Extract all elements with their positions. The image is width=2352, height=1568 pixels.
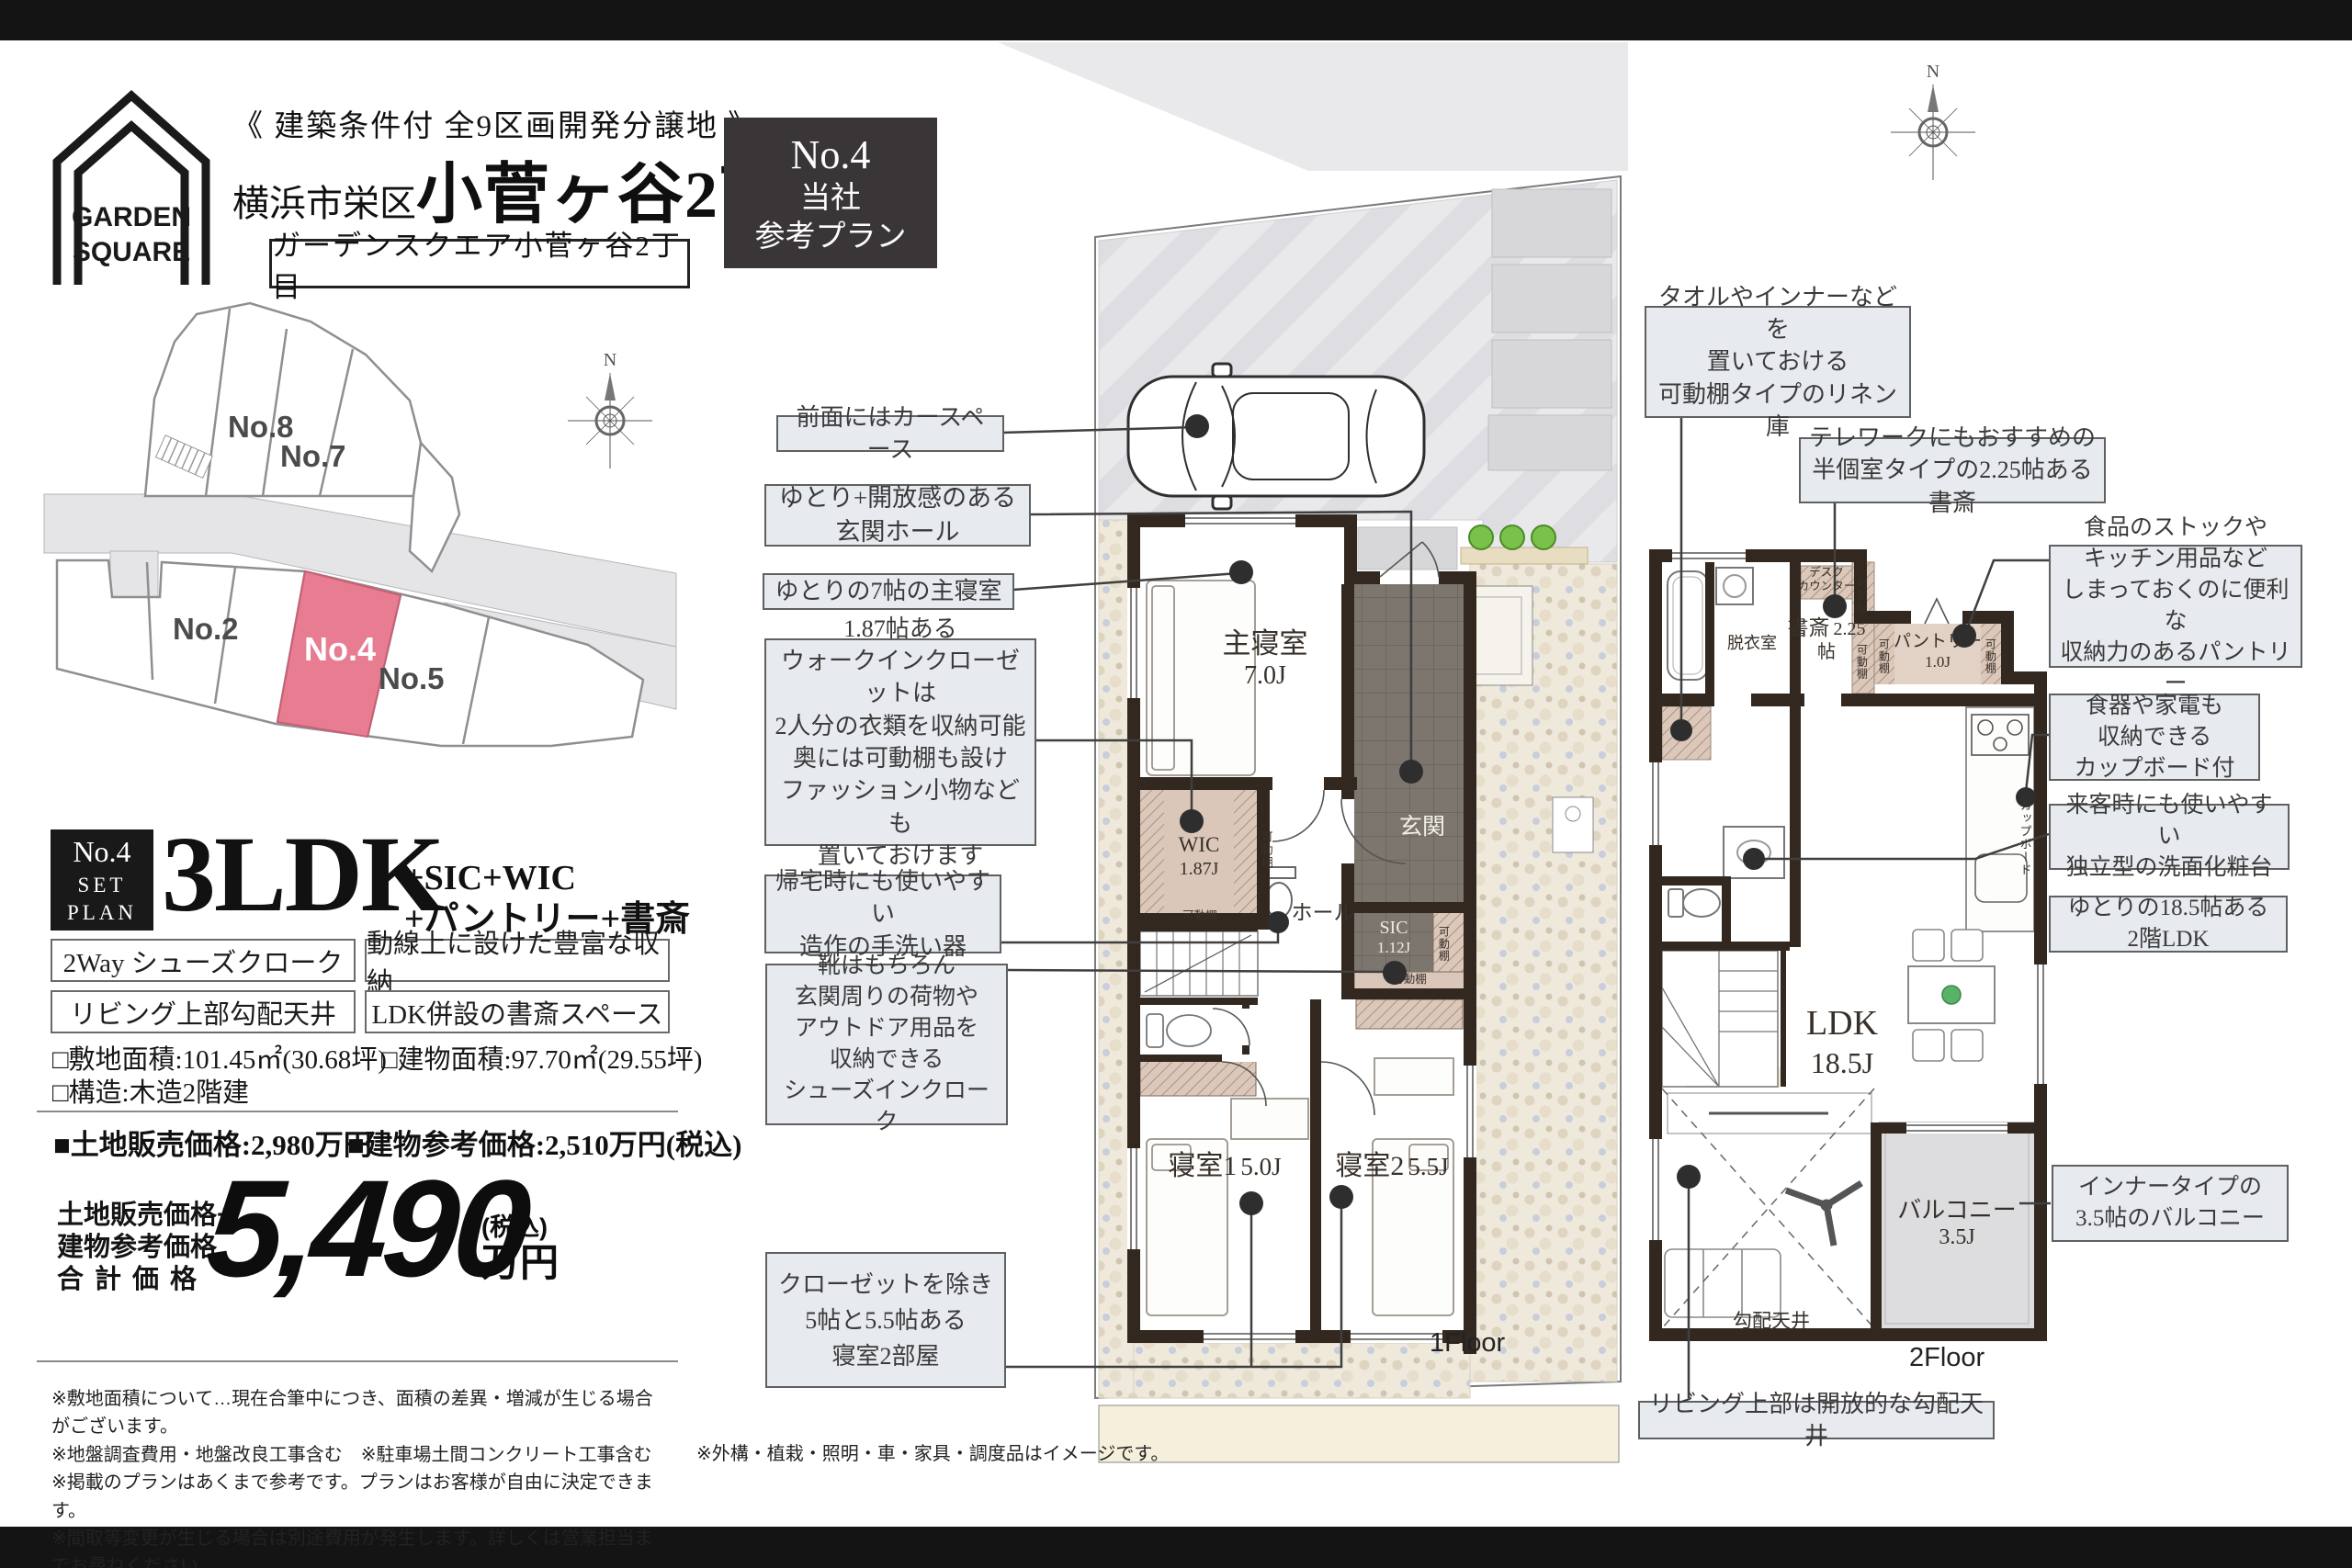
ldk-type: 3LDK [162,820,444,929]
divider-2 [37,1360,678,1362]
compass-icon [568,373,652,468]
room-master-bedroom: 主寝室 7.0J [1205,626,1325,692]
toilet-1f [1147,1014,1211,1047]
building-area: □建物面積:97.70㎡(29.55坪) [381,1038,702,1077]
callout-bedrooms: クローゼットを除き5帖と5.5帖ある寝室2部屋 [765,1252,1006,1388]
callout-linen-closet: タオルやインナーなどを置いておける可動棚タイプのリネン庫 [1645,306,1911,418]
room-name: 書斎 [1788,616,1830,639]
room-dressing: 脱衣室 [1720,634,1784,654]
total-price-unit: (税込) 万円 [481,1214,559,1284]
room-sic: SIC 1.12J [1362,917,1426,957]
car-illustration [1128,364,1424,509]
floor1-caption: 1Floor [1430,1328,1505,1359]
room-name: バルコニー [1897,1197,2016,1224]
lot-no2-label: No.2 [173,612,237,647]
badge-org: 当社 [800,180,861,218]
image-note: ※外構・植栽・照明・車・家具・調度品はイメージです。 [696,1440,1169,1468]
floor2-caption: 2Floor [1909,1343,1984,1373]
room-size: 1.12J [1377,939,1410,956]
room-name: SIC [1379,918,1408,938]
road-context-shape [998,42,1628,171]
room-balcony: バルコニー 3.5J [1883,1196,2030,1251]
plan-extras-1: +SIC+WIC [404,858,690,899]
room-size: 1.0J [1925,653,1951,671]
label-shelf: 可動棚 [1376,973,1442,987]
room-name: パントリー [1894,632,1982,651]
callout-shoes-closet: 靴はもちろん玄関周りの荷物やアウトドア用品を収納できるシューズインクローク [765,964,1008,1125]
note-line: ※掲載のプランはあくまで参考です。プランはお客様が自由に決定できます。 [51,1469,658,1525]
tax-included: (税込) [481,1214,559,1242]
room-name: WIC [1179,833,1220,856]
callout-sloped-ceiling: リビング上部は開放的な勾配天井 [1638,1401,1995,1439]
set-plan-set: SET [78,872,127,899]
flyer-page: N N [0,0,2352,1568]
floor-plan-1f [1095,176,1621,1462]
badge-plan: 参考プラン [755,219,907,256]
feature-study-space: LDK併設の書斎スペース [365,990,670,1033]
compass-n: N [604,350,616,370]
callout-cupboard: 食器や家電も収納できるカップボード付 [2049,694,2260,781]
logo-line1: GARDEN [72,202,191,232]
label-desk-counter: デスクカウンター [1790,566,1863,593]
sale-condition: 《 建築条件付 全9区画開発分譲地 》 [232,101,760,145]
badge-no: No.4 [791,130,871,180]
callout-entrance-hall: ゆとり+開放感のある玄関ホール [764,484,1031,547]
lot-no4-label: No.4 [303,630,377,669]
room-hall: ホール [1286,900,1360,926]
note-line: ※地盤調査費用・地盤改良工事含む ※駐車場土間コンクリート工事含む [51,1441,658,1469]
total-label-1: 土地販売価格+ [57,1200,232,1232]
stairs-2f [1662,951,1778,1087]
room-name: 主寝室 [1223,627,1308,660]
dining-set [1908,930,1995,1061]
bushes [1469,525,1555,549]
room-size: 3.5J [1939,1225,1974,1249]
front-road [1099,1405,1619,1462]
room-size: 1.87J [1180,859,1219,879]
room-wic: WIC 1.87J [1159,832,1238,880]
feature-shoes-cloak: 2Way シューズクローク [51,939,356,982]
label-shelf: 可動棚 [1437,911,1450,976]
room-name: 寝室2 [1335,1151,1404,1181]
label-sloped-ceiling: 勾配天井 [1724,1310,1819,1333]
bed2-closet [1356,999,1463,1029]
feature-storage: 動線上に設けた豊富な収納 [365,939,670,982]
set-plan-no: No.4 [73,833,130,872]
room-name: 寝室1 [1168,1151,1237,1181]
structure: □構造:木造2階建 [52,1071,249,1110]
bed1-closet [1140,1061,1256,1096]
room-ldk: LDK 18.5J [1792,1003,1893,1080]
callout-vanity: 来客時にも使いやすい独立型の洗面化粧台 [2049,804,2290,870]
project-name-box: ガーデンスクエア小菅ヶ谷2丁目 [269,239,690,288]
room-genkan: 玄関 [1378,814,1466,841]
callout-wic: 1.87帖あるウォークインクローゼットは2人分の衣類を収納可能奥には可動棚も設け… [764,638,1036,846]
set-plan-badge: No.4 SET PLAN [51,829,153,931]
callout-master-bedroom: ゆとりの7帖の主寝室 [763,573,1014,610]
label-shelf: 可動棚 [1259,814,1273,886]
room-study: 書斎 2.25帖 [1786,615,1867,663]
label-shelf: 可動棚 [1984,628,1996,683]
label-shelf: 可動棚 [1172,909,1227,923]
divider-1 [37,1111,678,1112]
callout-car-space: 前面にはカースペース [776,415,1004,452]
garden-square-logo: GARDEN SQUARE [48,88,215,285]
callout-balcony: インナータイプの3.5帖のバルコニー [2052,1165,2289,1242]
callout-ldk: ゆとりの18.5帖ある2階LDK [2049,896,2288,953]
compass-n-top: N [1927,62,1939,82]
room-size: 7.0J [1244,661,1286,690]
label-shelf: 可動棚 [1877,628,1890,683]
callout-study: テレワークにもおすすめの半個室タイプの2.25帖ある書斎 [1799,437,2106,503]
price-unit: 万円 [481,1242,559,1284]
room-size: 18.5J [1811,1046,1873,1079]
set-plan-plan: PLAN [67,899,137,927]
compass-icon-top [1891,85,1975,180]
logo-line2: SQUARE [73,237,190,267]
room-bedroom2: 寝室2 5.5J [1335,1150,1449,1183]
callout-pantry: 食品のストックやキッチン用品などしまっておくのに便利な収納力のあるパントリー [2049,545,2302,668]
site-map: N [44,303,676,746]
callout-hand-basin: 帰宅時にも使いやすい造作の手洗い器 [764,874,1001,953]
disclaimer-notes: ※敷地面積について…現在合筆中につき、面積の差異・増減が生じる場合がございます。… [51,1385,658,1568]
room-size: 5.5J [1408,1153,1448,1180]
lot-no5-label: No.5 [379,661,443,696]
room-pantry: パントリー 1.0J [1894,632,1982,671]
room-size: 5.0J [1240,1153,1281,1180]
room-bedroom1: 寝室1 5.0J [1168,1150,1282,1183]
plan-number-badge: No.4 当社 参考プラン [724,118,937,268]
note-line: ※敷地面積について…現在合筆中につき、面積の差異・増減が生じる場合がございます。 [51,1385,658,1441]
lot-no7-label: No.7 [280,439,345,474]
feature-sloped-ceiling: リビング上部勾配天井 [51,990,356,1033]
porch-steps [1472,586,1532,685]
note-line: ※間取等変更が生じる場合は別途費用が発生します。詳しくは営業担当までお尋ねくださ… [51,1525,658,1568]
room-name: LDK [1806,1004,1878,1043]
stairs-1f [1140,931,1258,996]
label-cupboard: カップボード [2018,790,2032,886]
